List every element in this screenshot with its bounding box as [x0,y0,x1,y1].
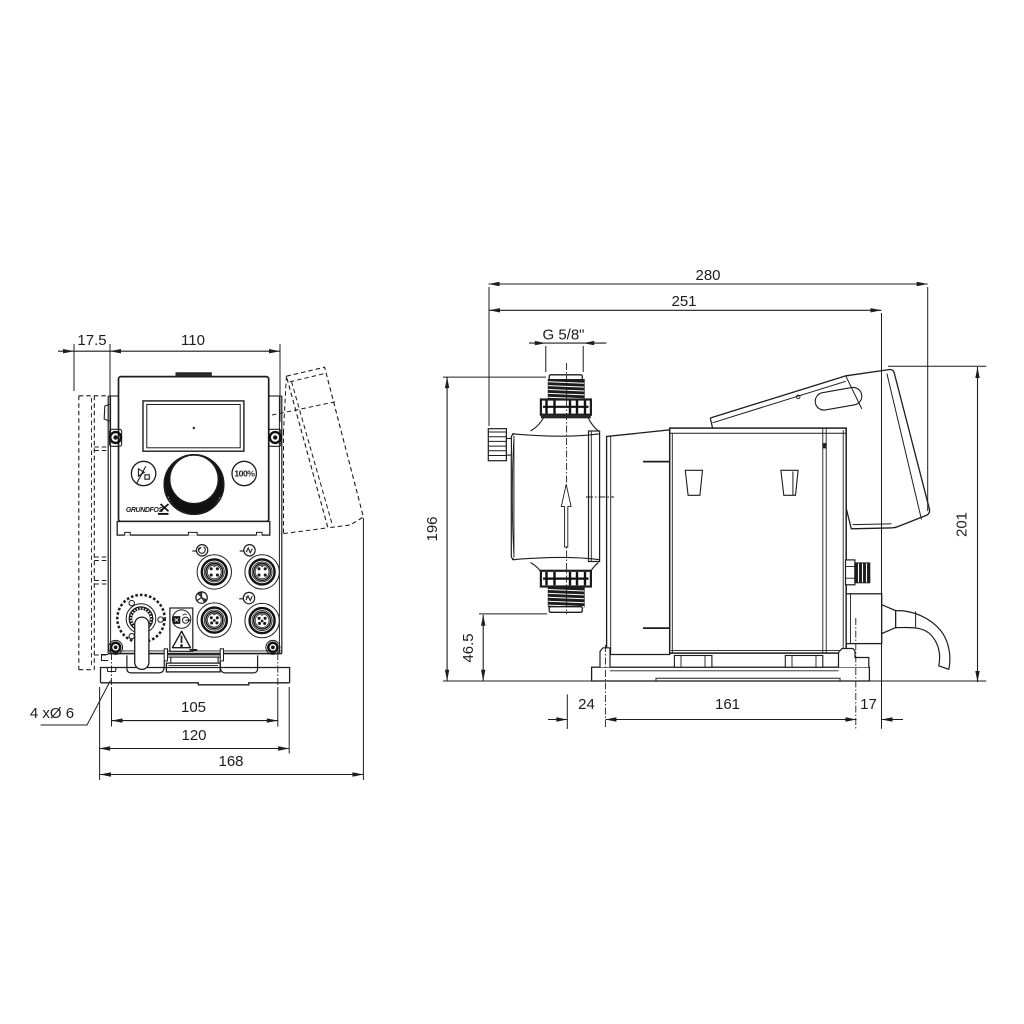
svg-text:G 5/8": G 5/8" [542,326,584,343]
svg-text:161: 161 [715,696,740,713]
svg-text:196: 196 [424,516,441,541]
svg-text:100%: 100% [234,469,255,479]
svg-text:280: 280 [695,267,720,284]
svg-text:168: 168 [218,753,243,770]
svg-text:251: 251 [671,293,696,310]
svg-text:GRUNDFOS: GRUNDFOS [126,507,164,514]
svg-text:17: 17 [860,696,877,713]
svg-text:4 xØ 6: 4 xØ 6 [30,705,74,722]
svg-text:120: 120 [181,727,206,744]
svg-text:24: 24 [578,696,595,713]
svg-text:17.5: 17.5 [77,332,106,349]
svg-text:46.5: 46.5 [460,633,477,662]
svg-text:105: 105 [181,699,206,716]
svg-text:110: 110 [181,332,205,349]
svg-text:201: 201 [954,512,971,537]
